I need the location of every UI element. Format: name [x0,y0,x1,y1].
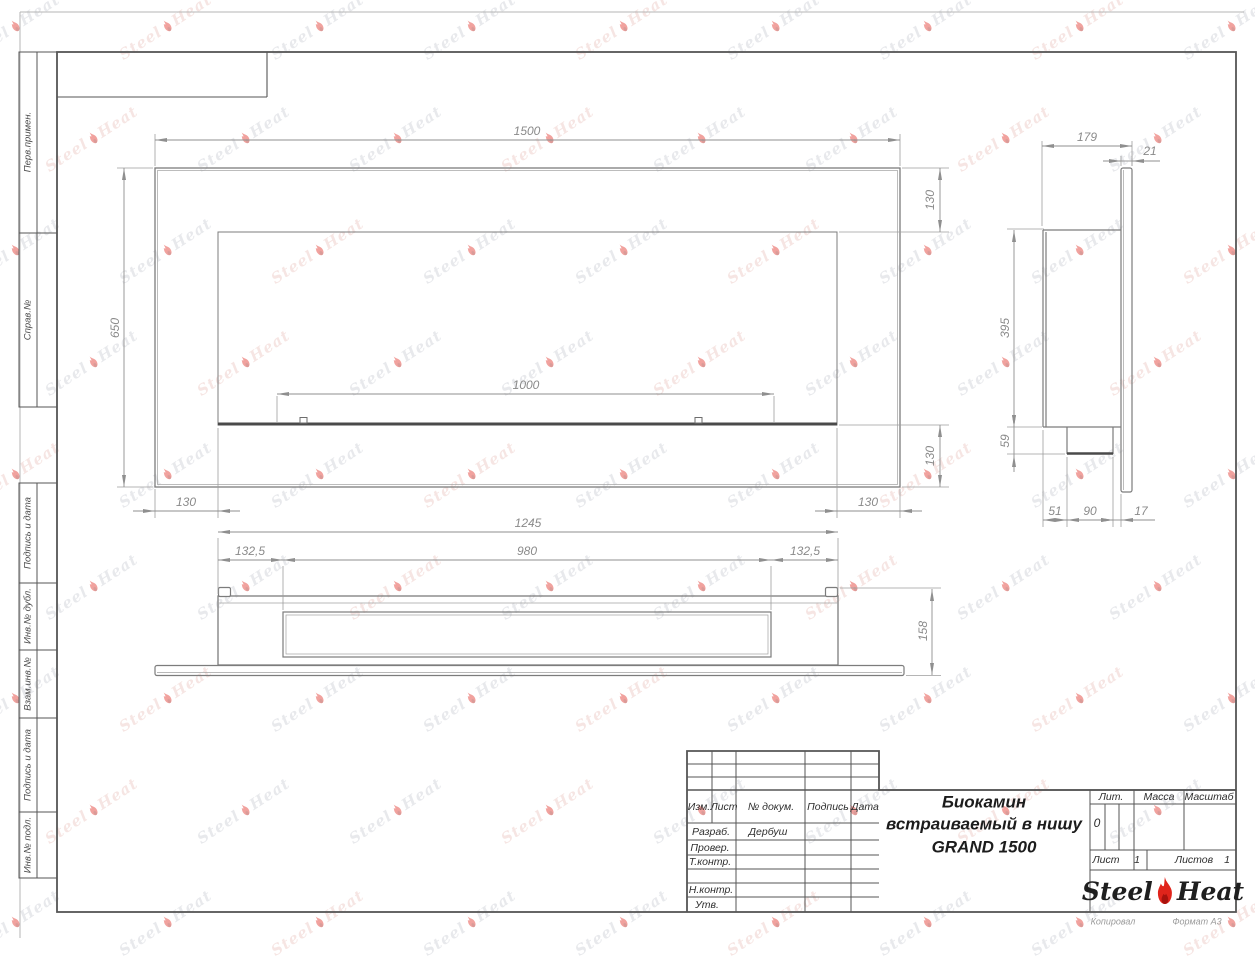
tb-sheet-value: 1 [1134,855,1140,866]
tb-lit-label: Лит. [1099,792,1124,803]
margin-stamp-vzam-inv: Взам.инв.№ [23,657,33,710]
tb-scale-label: Масштаб [1184,792,1233,803]
dim-side-frame-thickness: 21 [1143,145,1156,157]
drawing-sheet: Steel HeatSteel HeatSteel HeatSteel Heat… [0,0,1255,970]
steelheat-logo: Steel Heat [1082,876,1244,906]
dim-side-gap: 17 [1134,505,1147,517]
tb-mass-label: Масса [1143,792,1174,803]
dim-side-depth: 179 [1077,131,1097,143]
dim-insert-left-offset: 132,5 [235,545,265,557]
tb-header-sign: Подпись [807,802,849,813]
dim-insert-opening: 980 [517,545,537,557]
dim-front-height: 650 [109,318,121,338]
doc-title-line2: встраиваемый в нишу [886,816,1082,833]
margin-stamp-podpis-data-1: Подпись и дата [23,497,33,569]
margin-stamp-inv-dubl: Инв.№ дубл. [23,588,33,644]
logo-heat: Heat [1177,877,1244,906]
flame-icon [1153,876,1177,906]
tb-row-razrab-name: Дербуш [749,827,788,838]
logo-steel: Steel [1082,877,1153,906]
dim-burner-length: 1000 [513,379,540,391]
margin-stamp-inv-podl: Инв.№ подл. [23,817,33,873]
tb-lit-value: 0 [1094,817,1101,829]
tb-sheets-label: Листов [1175,855,1213,866]
margin-stamp-podpis-data-2: Подпись и дата [23,729,33,801]
dim-front-right-margin: 130 [858,496,878,508]
dim-front-width: 1500 [514,125,541,137]
tb-header-date: Дата [851,802,879,813]
dim-front-left-margin: 130 [176,496,196,508]
dim-side-tray-width: 90 [1083,505,1096,517]
tb-header-sheet: Лист [710,802,737,813]
tb-sheets-value: 1 [1224,855,1230,866]
dim-side-back-offset: 51 [1048,505,1061,517]
tb-row-utv: Утв. [695,900,719,911]
tb-row-prover: Провер. [690,843,729,854]
footer-copy: Копировал [1091,918,1136,927]
tb-header-doc: № докум. [748,802,794,813]
margin-stamp-sprav-no: Справ.№ [23,300,33,341]
tb-sheet-label: Лист [1092,855,1119,866]
dim-front-top-margin: 130 [924,190,936,210]
tb-row-tkontr: Т.контр. [689,857,731,868]
dim-insert-right-offset: 132,5 [790,545,820,557]
margin-stamp-perv-primen: Перв.примен. [23,112,33,173]
dim-insert-width: 1245 [515,517,542,529]
tb-header-change: Изм. [688,802,710,813]
dim-side-tray-height: 59 [999,434,1011,447]
dim-insert-height: 158 [917,621,929,641]
tb-row-nkontr: Н.контр. [689,885,733,896]
doc-title-line1: Биокамин [942,794,1026,811]
footer-format: Формат А3 [1172,918,1221,927]
doc-title-line3: GRAND 1500 [932,839,1037,856]
dim-front-bottom-margin: 130 [924,446,936,466]
tb-row-razrab: Разраб. [692,827,730,838]
text-layer: Перв.примен. Справ.№ Подпись и дата Инв.… [0,0,1255,970]
dim-side-height: 395 [999,318,1011,338]
